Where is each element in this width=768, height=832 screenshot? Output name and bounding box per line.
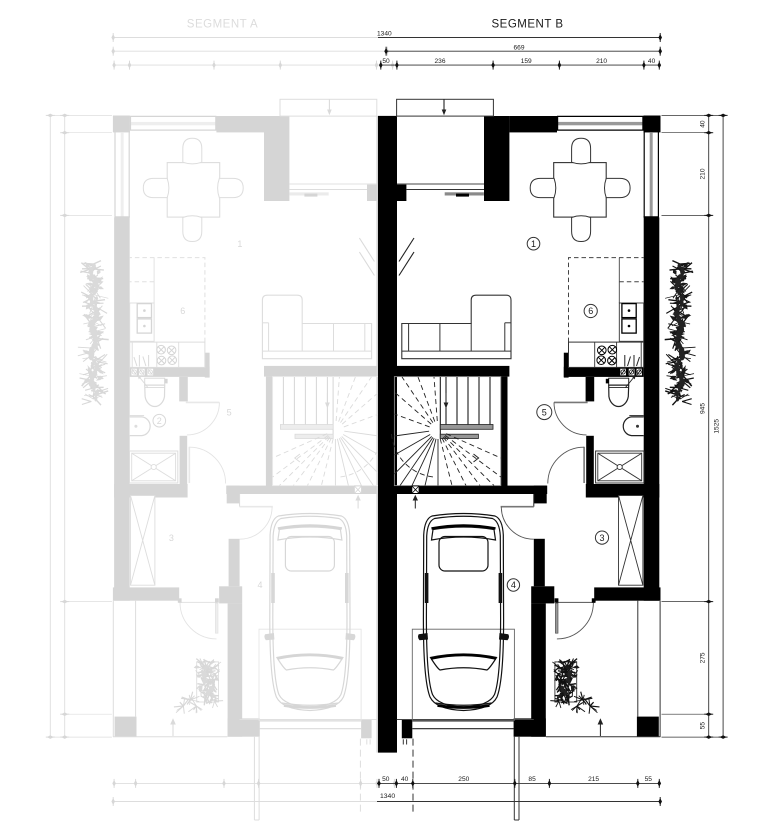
svg-text:40: 40: [401, 776, 409, 783]
svg-text:6: 6: [180, 306, 185, 316]
svg-text:945: 945: [700, 403, 707, 414]
svg-text:4: 4: [257, 580, 262, 590]
svg-text:2: 2: [157, 416, 162, 426]
svg-text:1340: 1340: [380, 793, 395, 800]
svg-text:3: 3: [169, 533, 174, 543]
svg-text:4: 4: [511, 580, 516, 590]
svg-text:5: 5: [227, 408, 232, 418]
svg-text:1525: 1525: [714, 419, 721, 434]
svg-text:1340: 1340: [377, 30, 392, 37]
svg-text:210: 210: [596, 58, 607, 65]
svg-text:275: 275: [700, 652, 707, 663]
svg-text:SEGMENT B: SEGMENT B: [491, 18, 563, 30]
svg-text:55: 55: [700, 722, 707, 730]
svg-text:50: 50: [382, 776, 390, 783]
svg-text:85: 85: [528, 776, 536, 783]
svg-text:40: 40: [648, 58, 656, 65]
svg-text:236: 236: [434, 58, 445, 65]
svg-text:250: 250: [458, 776, 469, 783]
svg-text:159: 159: [521, 58, 532, 65]
svg-text:1: 1: [237, 239, 242, 249]
svg-text:50: 50: [382, 58, 390, 65]
svg-text:6: 6: [588, 306, 593, 316]
svg-text:SEGMENT A: SEGMENT A: [187, 18, 258, 30]
svg-text:215: 215: [588, 776, 599, 783]
svg-text:40: 40: [700, 120, 707, 128]
svg-text:3: 3: [599, 533, 604, 543]
svg-text:210: 210: [700, 168, 707, 179]
svg-text:55: 55: [645, 776, 653, 783]
svg-text:669: 669: [513, 44, 524, 51]
svg-text:1: 1: [531, 239, 536, 249]
svg-text:5: 5: [542, 408, 547, 418]
